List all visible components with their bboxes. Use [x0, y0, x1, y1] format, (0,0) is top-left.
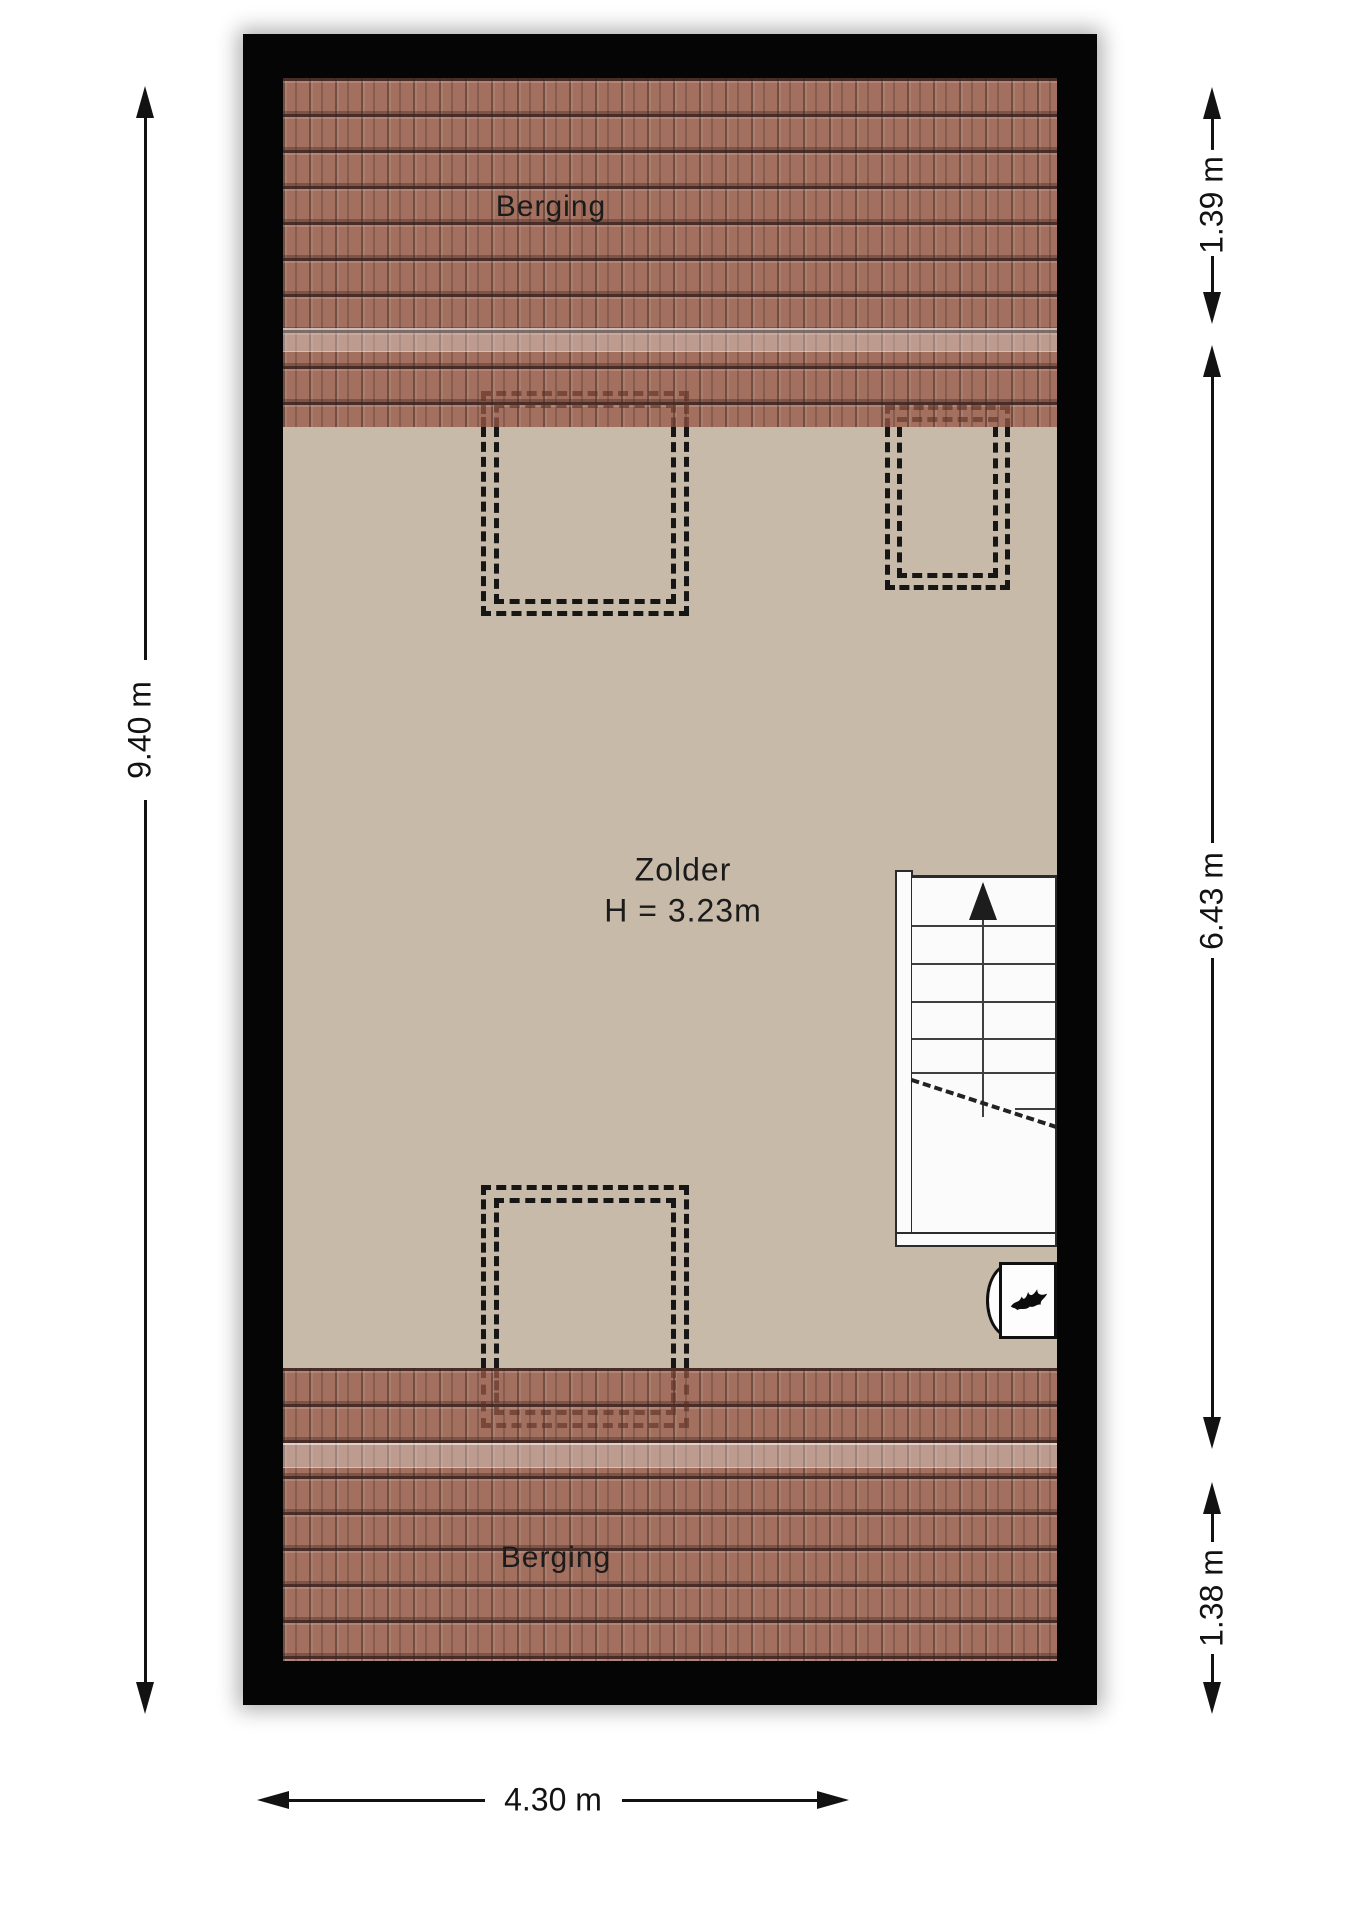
roof-window-outline-top-right-inner [897, 417, 998, 427]
dimension-label-left: 9.40 m [120, 675, 161, 785]
floor-plan-page: Berging Zolder H = 3.23m Berging 9.40 m … [0, 0, 1358, 1920]
room-label-berging-top: Berging [496, 190, 606, 224]
dimension-arrowhead [817, 1791, 849, 1809]
stair-bottom-wall [895, 1232, 1057, 1247]
dimension-arrowhead [1203, 1417, 1221, 1449]
dimension-line-bottom [622, 1799, 818, 1802]
dimension-label-right-bottom: 1.38 m [1192, 1543, 1233, 1653]
dimension-arrowhead [1203, 292, 1221, 324]
roof-ridge-band-bottom [283, 1443, 1057, 1468]
dimension-line-bottom [285, 1799, 485, 1802]
roof-window-outline-top-left-inner [494, 427, 676, 604]
roof-window-outline-bottom-inner [494, 1198, 676, 1368]
stairs [912, 875, 1057, 1232]
dimension-line-left [144, 112, 147, 660]
dimension-line-right-top [1211, 256, 1214, 294]
roof-window-outline-bottom-inner [494, 1368, 676, 1415]
dimension-line-right-middle [1211, 372, 1214, 843]
roof-window-outline-top-left-inner [494, 403, 676, 427]
stair-side-wall [895, 870, 913, 1247]
dimension-line-left [144, 800, 147, 1686]
stair-up-arrow-icon [969, 882, 997, 920]
wall-frame: Berging Zolder H = 3.23m Berging [243, 34, 1097, 1705]
dimension-line-right-bottom [1211, 1654, 1214, 1684]
stair-tread-line [1015, 1108, 1055, 1110]
room-height-label: H = 3.23m [604, 893, 762, 930]
dimension-line-right-middle [1211, 958, 1214, 1418]
dimension-arrowhead [1203, 1682, 1221, 1714]
room-label-zolder: Zolder [635, 852, 732, 889]
roof-ridge-band-top [283, 328, 1057, 352]
plan-interior: Berging Zolder H = 3.23m Berging [283, 78, 1057, 1661]
dimension-line-right-bottom [1211, 1508, 1214, 1542]
dimension-label-right-top: 1.39 m [1192, 150, 1233, 260]
room-label-berging-bottom: Berging [501, 1541, 611, 1575]
roof-window-outline-top-right-inner [897, 427, 998, 578]
roof-section-top [283, 78, 1057, 427]
dimension-arrowhead [136, 1682, 154, 1714]
boiler [999, 1262, 1057, 1339]
dimension-label-bottom: 4.30 m [498, 1780, 608, 1821]
flame-icon [1009, 1286, 1049, 1316]
dimension-label-right-middle: 6.43 m [1192, 846, 1233, 956]
